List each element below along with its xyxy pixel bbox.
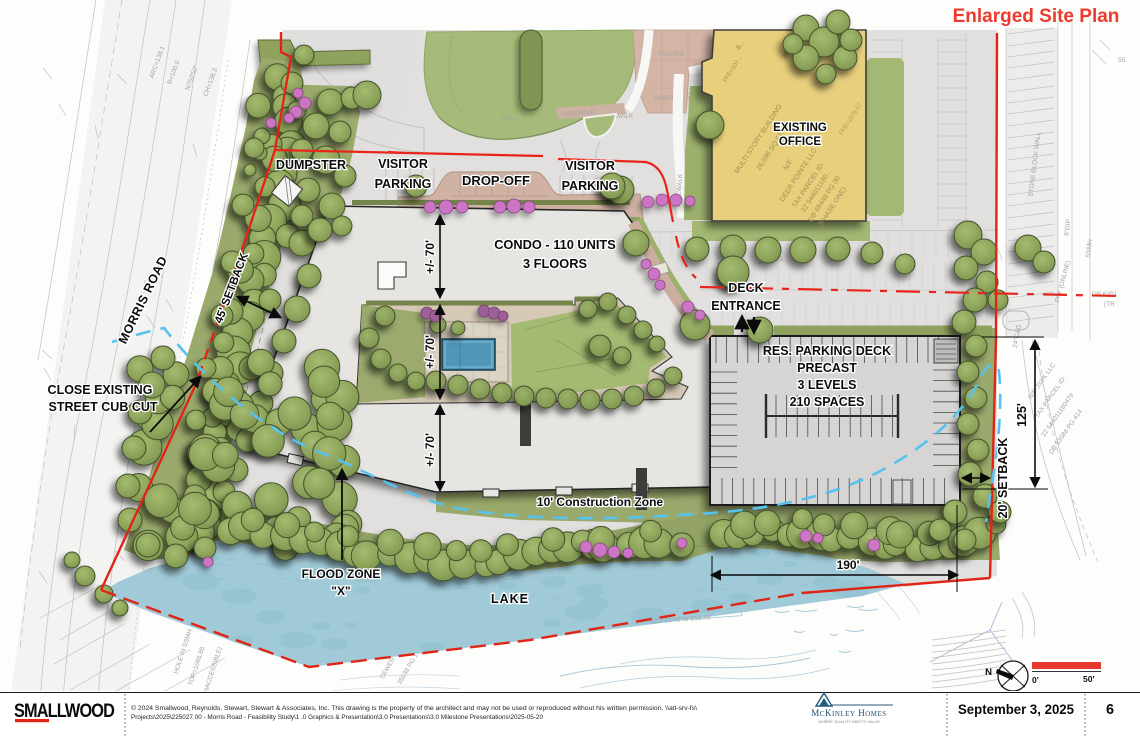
svg-text:190': 190' xyxy=(837,558,860,572)
svg-text:3 FLOORS: 3 FLOORS xyxy=(523,256,587,271)
svg-text:210 SPACES: 210 SPACES xyxy=(790,395,865,409)
svg-text:CLOSE EXISTING: CLOSE EXISTING xyxy=(48,383,153,397)
svg-text:+/- 70': +/- 70' xyxy=(423,240,437,274)
svg-text:125': 125' xyxy=(1015,403,1029,427)
svg-text:+/- 70': +/- 70' xyxy=(423,335,437,369)
svg-text:DECK: DECK xyxy=(728,281,763,295)
svg-text:DROP-OFF: DROP-OFF xyxy=(462,173,530,188)
svg-text:RES. PARKING DECK: RES. PARKING DECK xyxy=(763,344,891,358)
svg-text:20' SETBACK: 20' SETBACK xyxy=(996,438,1010,519)
svg-text:MCKINLEY HOMES: MCKINLEY HOMES xyxy=(811,708,886,718)
svg-text:EXISTING: EXISTING xyxy=(773,122,827,134)
svg-text:ENTRANCE: ENTRANCE xyxy=(711,299,780,313)
svg-text:+/- 70': +/- 70' xyxy=(423,433,437,467)
svg-text:6: 6 xyxy=(1106,702,1114,718)
svg-text:VISITOR: VISITOR xyxy=(565,159,615,173)
svg-text:N: N xyxy=(985,667,992,678)
svg-text:DUMPSTER: DUMPSTER xyxy=(276,158,346,172)
svg-text:WALL: WALL xyxy=(500,115,518,122)
svg-text:VISITOR: VISITOR xyxy=(378,157,428,171)
svg-text:Projects\2025\225027.00 - Morr: Projects\2025\225027.00 - Morris Road - … xyxy=(131,714,543,721)
svg-text:PAVERS: PAVERS xyxy=(658,51,684,58)
svg-text:3 LEVELS: 3 LEVELS xyxy=(797,378,856,392)
svg-text:50': 50' xyxy=(1083,674,1094,684)
svg-text:PARKING: PARKING xyxy=(562,179,619,193)
svg-text:CONDO - 110 UNITS: CONDO - 110 UNITS xyxy=(494,237,616,252)
svg-text:Enlarged Site Plan: Enlarged Site Plan xyxy=(953,6,1120,27)
svg-text:PRECAST: PRECAST xyxy=(797,361,857,375)
svg-text:55: 55 xyxy=(1118,57,1126,64)
svg-text:0': 0' xyxy=(1032,675,1039,685)
svg-text:September 3, 2025: September 3, 2025 xyxy=(958,701,1074,717)
svg-text:"X": "X" xyxy=(331,584,350,598)
svg-text:SMALLWOOD: SMALLWOOD xyxy=(14,701,114,722)
svg-text:WHERE QUALITY MEETS VALUE: WHERE QUALITY MEETS VALUE xyxy=(818,719,880,724)
svg-text:OFFICE: OFFICE xyxy=(779,136,821,148)
svg-text:10' Construction Zone: 10' Construction Zone xyxy=(537,495,664,509)
svg-text:FLOOD ZONE: FLOOD ZONE xyxy=(302,567,381,581)
svg-text:STREET CUB CUT: STREET CUB CUT xyxy=(48,400,157,414)
svg-text:PARKING: PARKING xyxy=(375,177,432,191)
svg-text:LAKE: LAKE xyxy=(491,592,529,606)
svg-text:© 2024 Smallwood, Reynolds, St: © 2024 Smallwood, Reynolds, Stewart, Ste… xyxy=(131,704,697,712)
svg-text:(TR: (TR xyxy=(1104,301,1115,308)
